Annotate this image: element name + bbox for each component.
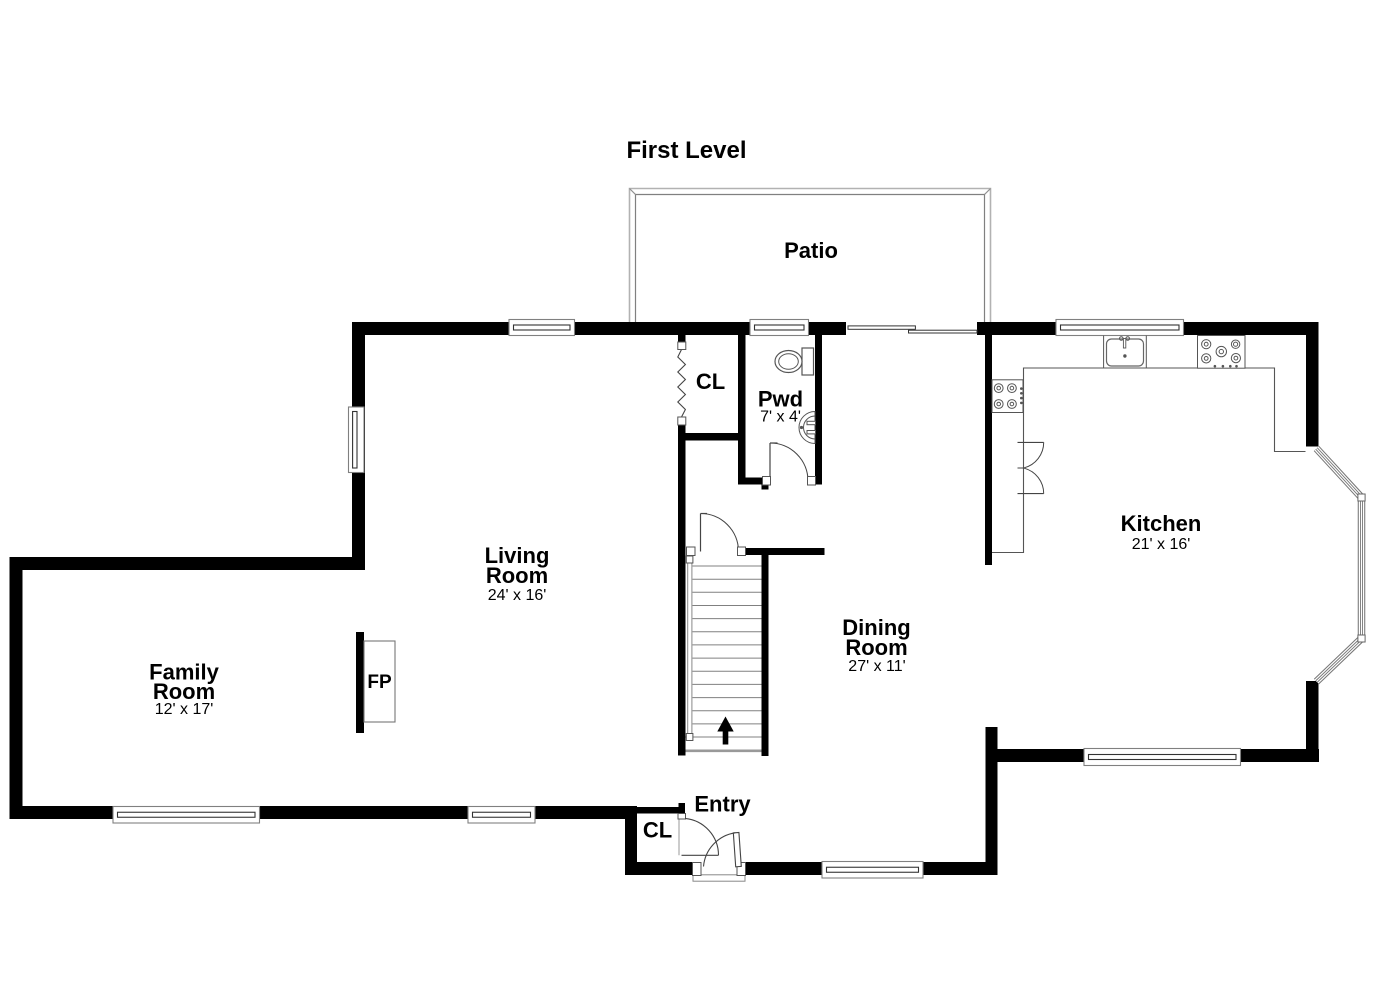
svg-text:CL: CL <box>643 818 672 843</box>
svg-text:7' x 4': 7' x 4' <box>760 409 801 426</box>
svg-text:Room: Room <box>486 563 548 588</box>
svg-text:Kitchen: Kitchen <box>1121 511 1202 536</box>
svg-text:12' x 17': 12' x 17' <box>155 701 214 718</box>
svg-text:24' x 16': 24' x 16' <box>488 587 547 604</box>
svg-text:Patio: Patio <box>784 238 838 263</box>
svg-text:First Level: First Level <box>626 137 746 164</box>
svg-text:21' x 16': 21' x 16' <box>1132 536 1191 553</box>
svg-text:FP: FP <box>367 672 392 693</box>
svg-text:Room: Room <box>845 635 907 660</box>
svg-text:Entry: Entry <box>694 792 751 817</box>
svg-text:CL: CL <box>696 369 725 394</box>
svg-text:27' x 11': 27' x 11' <box>848 658 905 675</box>
